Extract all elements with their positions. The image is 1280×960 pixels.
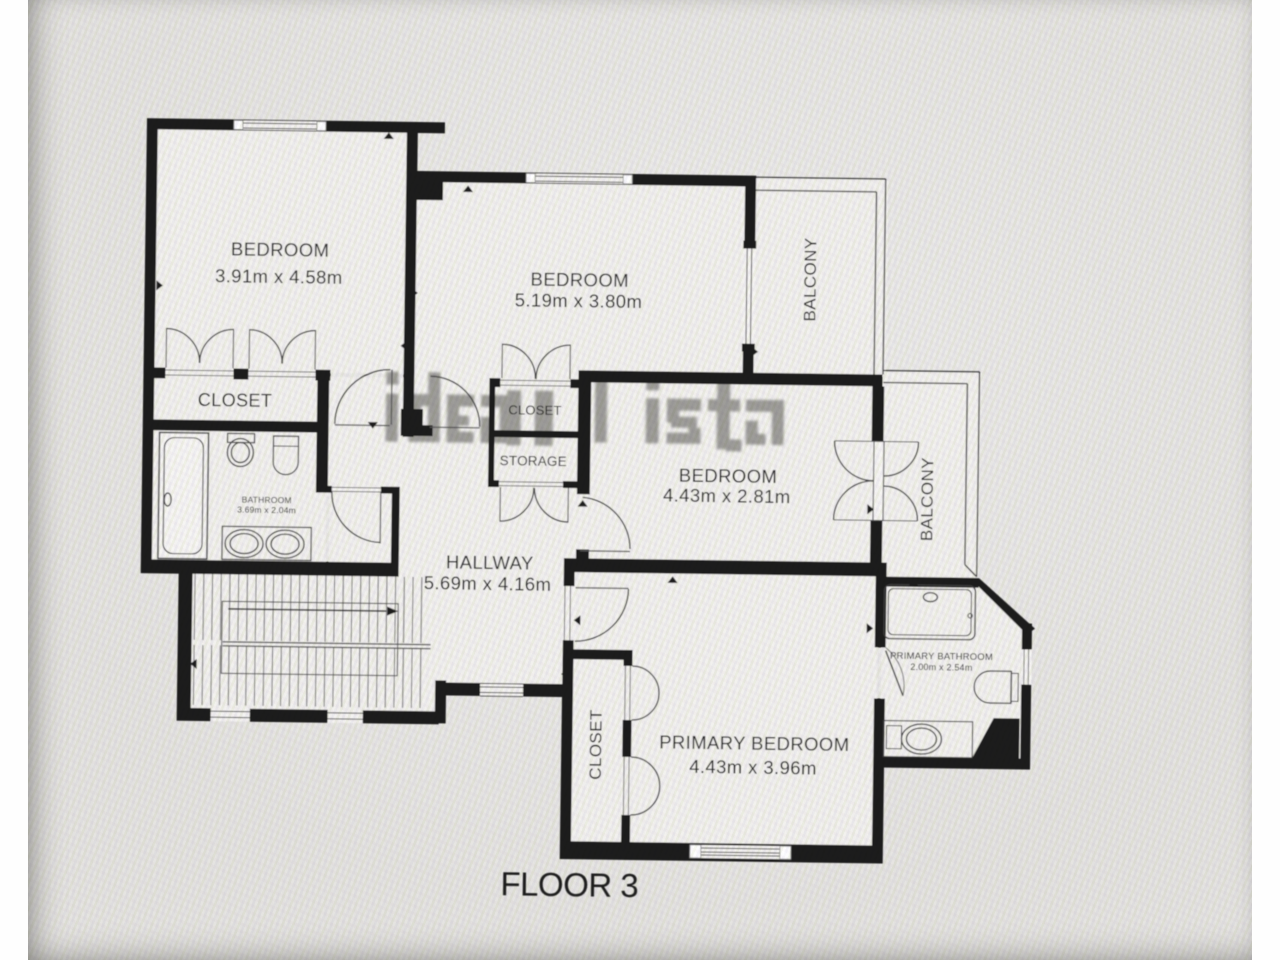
- svg-text:CLOSET: CLOSET: [586, 709, 606, 780]
- svg-text:BEDROOM: BEDROOM: [679, 465, 778, 487]
- svg-text:HALLWAY: HALLWAY: [446, 551, 534, 573]
- svg-text:4.43m x 2.81m: 4.43m x 2.81m: [663, 484, 791, 507]
- svg-text:BEDROOM: BEDROOM: [231, 238, 330, 260]
- svg-text:BATHROOM: BATHROOM: [242, 495, 292, 506]
- svg-text:BALCONY: BALCONY: [800, 237, 820, 321]
- svg-text:CLOSET: CLOSET: [198, 390, 273, 411]
- svg-text:FLOOR 3: FLOOR 3: [500, 865, 638, 904]
- svg-text:BEDROOM: BEDROOM: [530, 269, 629, 291]
- svg-text:STORAGE: STORAGE: [500, 453, 567, 469]
- svg-text:PRIMARY BATHROOM: PRIMARY BATHROOM: [890, 651, 993, 663]
- svg-text:5.19m x 3.80m: 5.19m x 3.80m: [515, 289, 643, 312]
- svg-text:3.91m x 4.58m: 3.91m x 4.58m: [215, 265, 343, 288]
- svg-text:2.00m x 2.54m: 2.00m x 2.54m: [910, 662, 972, 673]
- svg-text:5.69m x 4.16m: 5.69m x 4.16m: [424, 572, 552, 595]
- svg-text:3.69m x 2.04m: 3.69m x 2.04m: [237, 504, 296, 515]
- svg-text:PRIMARY BEDROOM: PRIMARY BEDROOM: [659, 731, 850, 755]
- svg-text:BALCONY: BALCONY: [917, 457, 937, 541]
- svg-text:CLOSET: CLOSET: [508, 402, 561, 418]
- svg-text:4.43m x 3.96m: 4.43m x 3.96m: [689, 756, 817, 779]
